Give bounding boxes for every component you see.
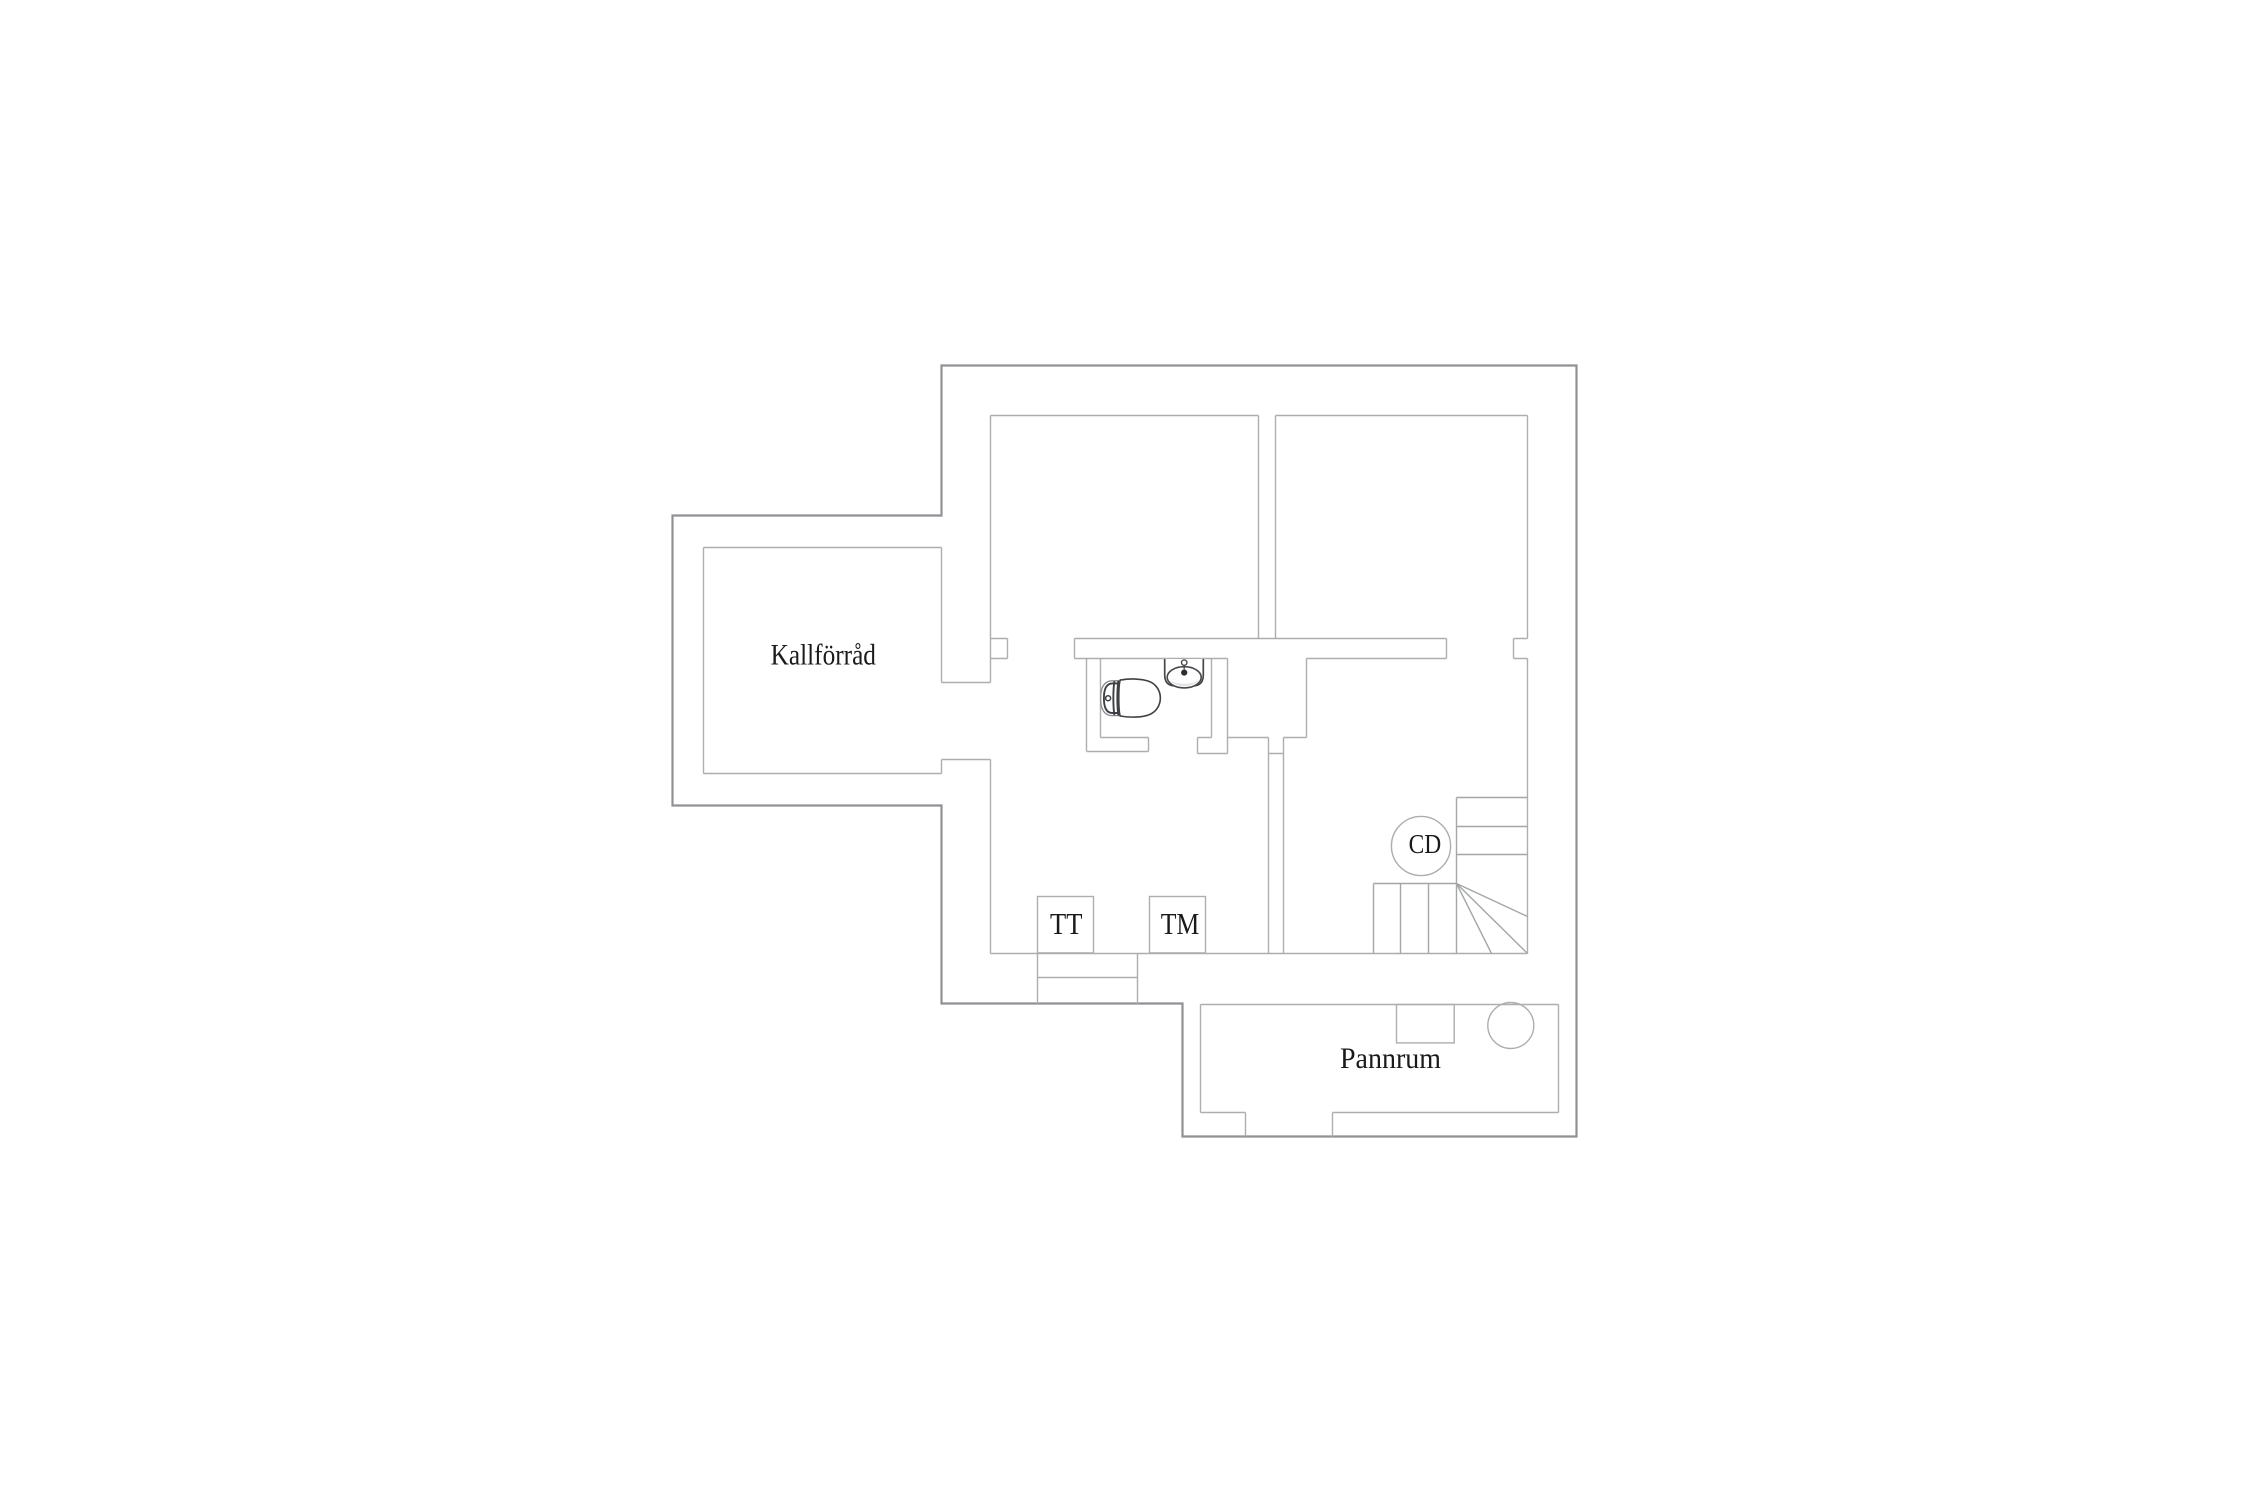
svg-text:TM: TM bbox=[1161, 907, 1200, 941]
svg-text:CD: CD bbox=[1409, 828, 1442, 859]
svg-text:Kallförråd: Kallförråd bbox=[771, 639, 876, 672]
svg-text:TT: TT bbox=[1050, 907, 1082, 941]
svg-text:Pannrum: Pannrum bbox=[1340, 1042, 1441, 1075]
